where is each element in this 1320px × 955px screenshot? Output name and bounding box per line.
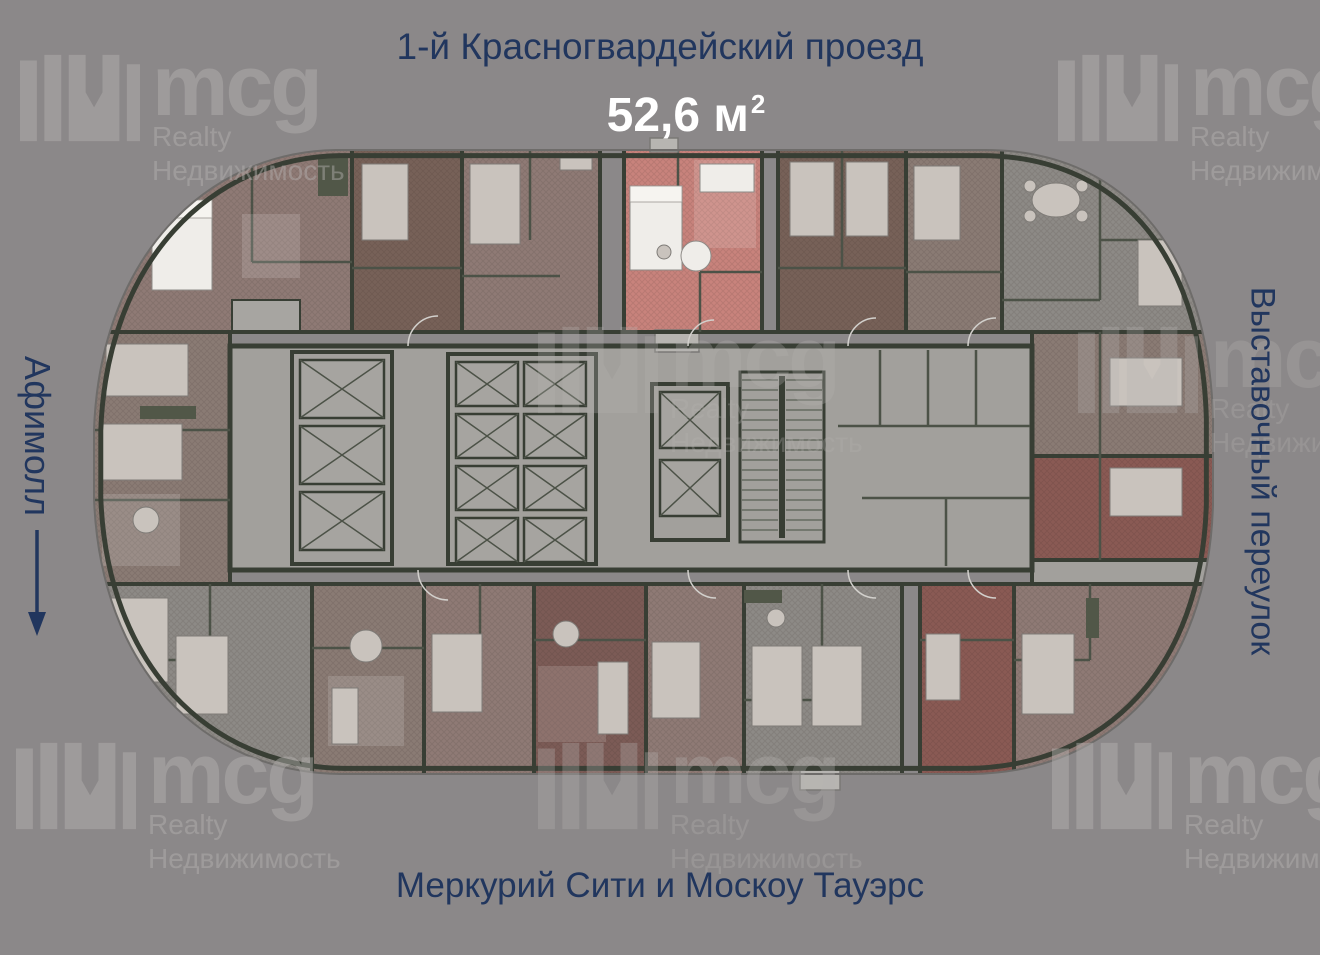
street-label-top: 1-й Красногвардейский проезд: [397, 26, 924, 68]
towers-label-bottom: Меркурий Сити и Москоу Тауэрс: [396, 866, 924, 906]
area-value: 52,6 м: [607, 89, 749, 142]
street-label-right: Выставочный переулок: [1243, 287, 1282, 655]
landmark-label-left: Афимолл: [16, 356, 58, 516]
direction-arrow-icon: [23, 530, 51, 636]
floor-plan: [0, 0, 1320, 955]
apartment-area-label: 52,6 м2: [607, 88, 766, 143]
entrance-tab-bottom: [800, 770, 840, 790]
area-superscript: 2: [751, 89, 765, 119]
floorplan-page: mcg Realty Недвижимость mcg Realty Недви…: [0, 0, 1320, 955]
